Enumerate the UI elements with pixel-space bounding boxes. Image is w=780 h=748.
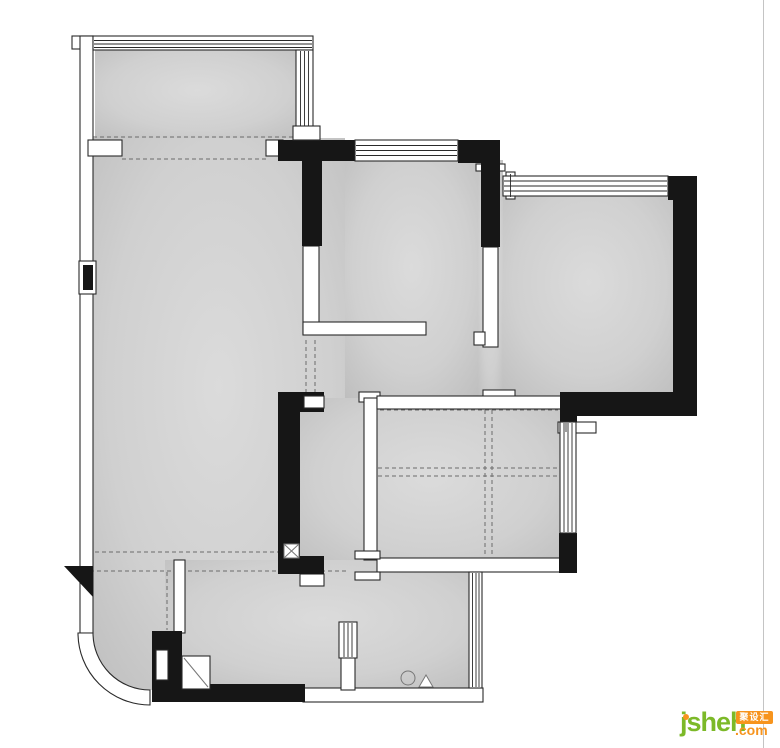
wall-notch (156, 650, 168, 680)
wall-notch (474, 332, 485, 345)
kitchen-bottom-wall (377, 558, 561, 572)
floor-plan-page: jsheh 聚设汇 .com (0, 0, 780, 748)
column (83, 265, 93, 290)
kitchen-left-wall (364, 398, 377, 560)
watermark-j-dot (683, 714, 689, 720)
door-jamb (355, 551, 380, 559)
wall-segment (560, 392, 577, 422)
wall-stub (88, 140, 122, 156)
wall-segment (560, 392, 697, 416)
bottom-exterior-wall (303, 688, 483, 702)
bedroom-partition-wall (303, 322, 426, 335)
kitchen-top-wall (377, 396, 562, 409)
wall-notch (304, 396, 324, 408)
middle-bedroom-floor (345, 160, 478, 398)
exterior-left-wall (80, 36, 93, 633)
bottom-room-window (469, 572, 482, 688)
bedroom-partition-wall (303, 246, 319, 334)
bathroom-wall (278, 556, 324, 574)
door-jamb (355, 572, 380, 580)
balcony-floor (95, 50, 300, 140)
wall-segment (300, 574, 324, 586)
watermark-tld-text: .com (735, 722, 768, 738)
exterior-right-wall (673, 176, 697, 416)
floor-plan-drawing (0, 0, 780, 748)
wall-segment (278, 140, 355, 161)
wall-stub (341, 657, 355, 690)
watermark: jsheh 聚设汇 .com (680, 706, 778, 746)
door-leaf-triangle (64, 566, 93, 597)
wall-segment (481, 140, 500, 247)
wall-stub (174, 560, 185, 633)
kitchen-bath-floor (300, 398, 562, 572)
wall-segment (302, 161, 322, 246)
door-threshold (293, 126, 320, 140)
wall-segment (559, 533, 577, 573)
right-bedroom-floor (503, 188, 675, 398)
